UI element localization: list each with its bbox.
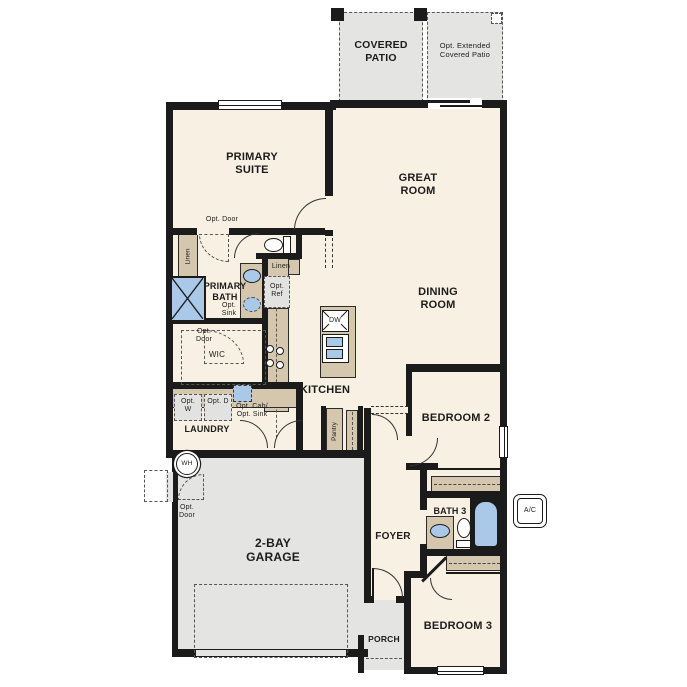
wall-wc-right xyxy=(296,228,302,259)
garage-label: 2-BAY GARAGE xyxy=(238,536,308,565)
ac-unit: A/C xyxy=(513,494,547,528)
kitchen-label: KITCHEN xyxy=(295,384,355,397)
wall-right-outer xyxy=(500,100,507,674)
linen-vertical-label: Linen xyxy=(185,248,192,264)
pantry-label: Pantry xyxy=(331,422,338,441)
laundry-opt-sink-icon xyxy=(233,385,252,402)
wc-toilet-icon xyxy=(264,236,294,254)
garage-door-gap xyxy=(196,650,346,656)
wall-dining-bedroom2 xyxy=(406,364,507,372)
garage-opt-door-label: Opt. Door xyxy=(174,504,200,520)
bedroom2-closet-header xyxy=(438,468,503,470)
bedroom3-label: BEDROOM 3 xyxy=(413,620,503,633)
bath3-sink-icon xyxy=(430,524,450,538)
porch-post xyxy=(358,635,364,673)
primary-suite-window xyxy=(218,100,282,110)
opt-dryer-label: Opt. D xyxy=(207,398,229,406)
bedroom3-window xyxy=(437,666,484,675)
laundry-label: LAUNDRY xyxy=(177,424,237,435)
bath3-label: BATH 3 xyxy=(426,506,474,517)
cased-opening-corridor xyxy=(371,406,408,414)
bedroom2-window xyxy=(499,426,508,458)
great-room-label: GREAT ROOM xyxy=(388,172,448,198)
bedroom2-label: BEDROOM 2 xyxy=(411,412,501,425)
bath3-tub-icon xyxy=(470,497,503,552)
garage-opt-door-stoop xyxy=(144,470,168,502)
linen-vertical-label-wrap: Linen xyxy=(176,236,200,276)
patio-corner-dashed-post xyxy=(491,13,502,24)
linen-horizontal-label: Linen xyxy=(264,263,298,271)
water-heater-label: WH xyxy=(181,460,192,468)
bedroom3-closet-pole xyxy=(449,563,500,564)
wall-garage-foyer xyxy=(364,408,371,602)
covered-patio-label: COVERED PATIO xyxy=(346,39,416,64)
dining-room-label: DINING ROOM xyxy=(405,286,471,312)
porch-label: PORCH xyxy=(365,634,403,644)
primary-suite-label: PRIMARY SUITE xyxy=(217,151,287,177)
front-door-leaf xyxy=(372,568,374,598)
pantry-label-wrap: Pantry xyxy=(326,412,343,450)
cooktop-icon xyxy=(265,344,287,376)
suite-entry-gap xyxy=(325,196,333,230)
opt-cab-sink-label: Opt. Cab/ Opt. Sink xyxy=(230,403,274,419)
wic-label: WIC xyxy=(197,350,237,360)
porch-step-dashed xyxy=(366,658,402,659)
water-heater-icon: WH xyxy=(176,453,198,475)
patio-post-right xyxy=(414,8,427,21)
wall-bedroom2-left xyxy=(406,368,412,436)
wall-coat-right xyxy=(358,406,363,452)
patio-post-left xyxy=(331,8,344,21)
opt-washer-label: Opt. W xyxy=(177,398,199,414)
primary-bath-label: PRIMARY BATH xyxy=(197,281,253,303)
foyer-label: FOYER xyxy=(365,531,421,543)
opt-sink-label: Opt. Sink xyxy=(216,302,242,318)
wall-garage-top xyxy=(172,450,371,458)
opt-ref-label: Opt. Ref xyxy=(266,283,288,299)
greatroom-sliding-door xyxy=(428,98,482,109)
garage-door-dashed xyxy=(194,584,348,658)
wall-bedroom3-left xyxy=(404,571,411,674)
floor-plan: WH A/C COVERED PATIO Opt. Extended Cover… xyxy=(0,0,687,687)
dw-label: DW xyxy=(324,317,346,325)
cased-opening-hall xyxy=(325,238,333,268)
wall-bath3-left-upper xyxy=(420,470,427,510)
bedroom2-closet-pole xyxy=(434,484,500,485)
coat-closet-dashline xyxy=(352,412,353,450)
bedroom3-closet-header xyxy=(446,572,503,574)
wic-opt-door-label: Opt. Door xyxy=(192,328,216,344)
island-sink-icon xyxy=(322,334,349,363)
opt-extended-patio-label: Opt. Extended Covered Patio xyxy=(432,42,498,59)
suite-opt-door-label: Opt. Door xyxy=(200,216,244,224)
